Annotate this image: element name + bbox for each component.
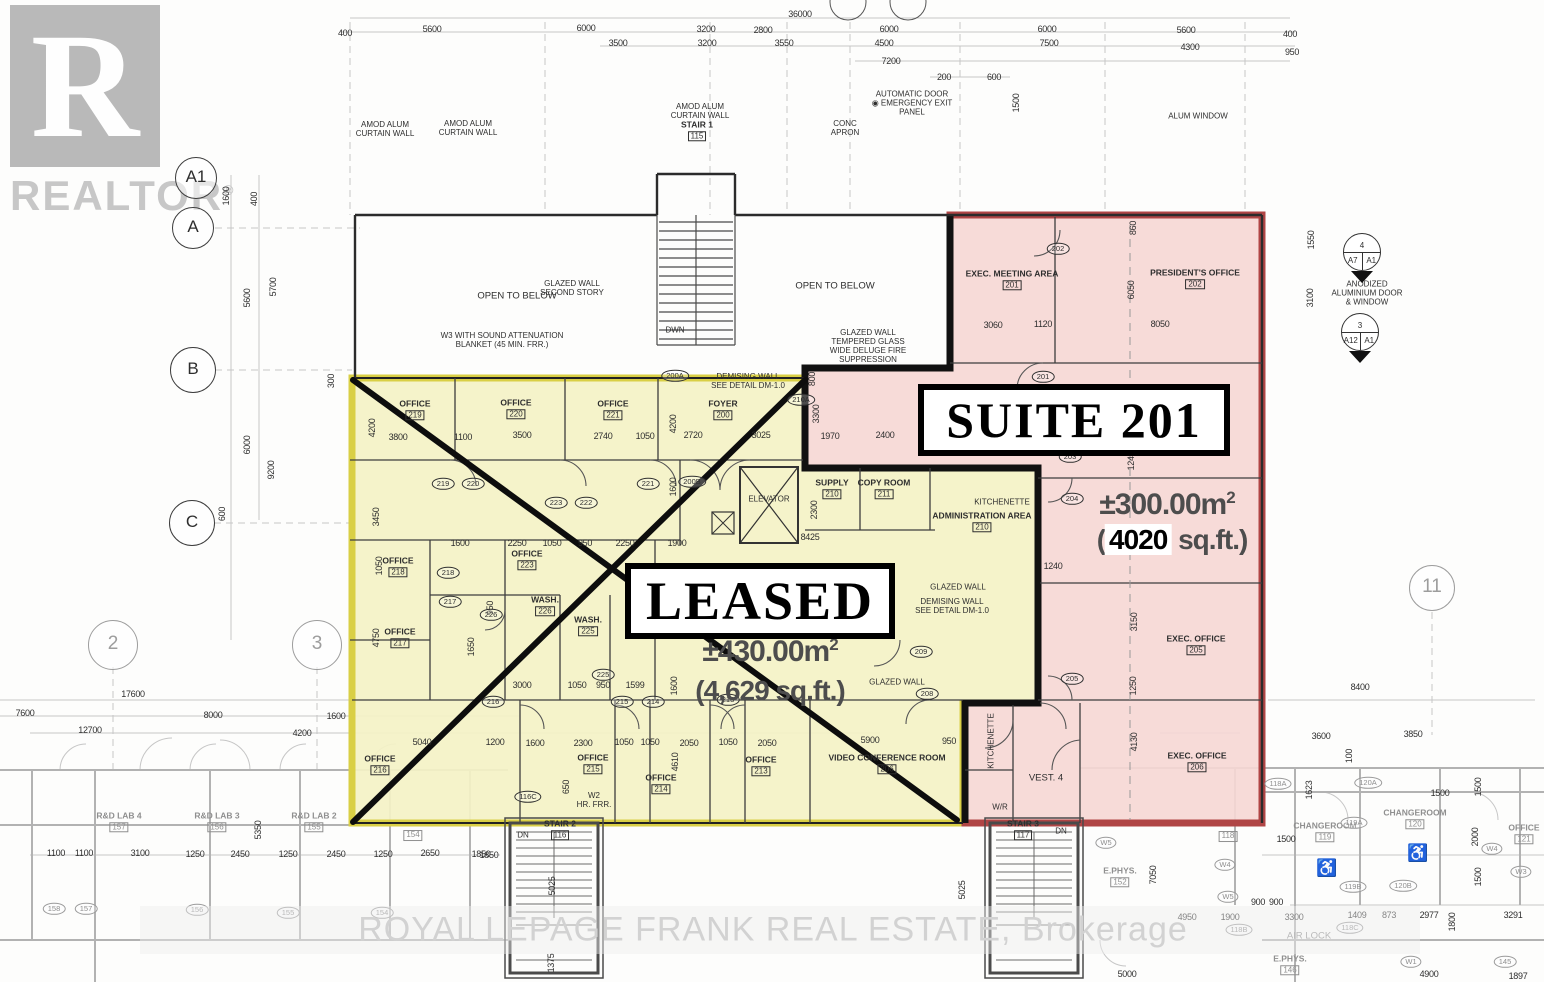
dimension-label: 650	[561, 780, 571, 794]
door-tag: 209	[910, 646, 933, 658]
door-tag: 202	[1047, 243, 1070, 255]
dimension-label: 1600	[221, 187, 231, 206]
detail-marker: 4A7A1	[1343, 233, 1381, 283]
dimension-label: 1900	[668, 538, 687, 548]
dimension-label: 12700	[78, 725, 102, 735]
dimension-label: 1050	[719, 737, 738, 747]
dimension-label: 2050	[758, 738, 777, 748]
door-tag: 201	[1032, 371, 1055, 383]
dimension-label: 3600	[1312, 731, 1331, 741]
dimension-label: 1050	[543, 538, 562, 548]
door-tag: W4	[1481, 843, 1502, 855]
dimension-label: 1120	[1034, 319, 1052, 329]
door-tag: W3	[1510, 866, 1531, 878]
dimension-label: 1897	[1509, 971, 1528, 981]
dimension-label: 400	[1283, 29, 1297, 39]
annotation-label: VEST. 4	[1029, 774, 1063, 785]
dimension-label: 1600	[668, 478, 678, 497]
door-tag: 219	[432, 478, 455, 490]
room-label: STAIR 1115	[681, 120, 713, 141]
dimension-label: 4750	[371, 629, 381, 648]
brokerage-watermark: ROYAL LEPAGE FRANK REAL ESTATE, Brokerag…	[358, 911, 1188, 950]
dimension-label: 5700	[268, 278, 278, 297]
dimension-label: 950	[596, 680, 610, 690]
dimension-label: 2000	[1470, 828, 1480, 847]
door-tag: 118A	[1265, 778, 1292, 790]
dimension-label: 3550	[775, 38, 794, 48]
dimension-label: 1600	[526, 738, 545, 748]
dimension-label: 2400	[876, 430, 895, 440]
dimension-label: 4200	[293, 728, 312, 738]
suite-area-sqft: (4020 sq.ft.)	[1097, 524, 1248, 556]
dimension-label: 3850	[1404, 729, 1423, 739]
annotation-label: GLAZED WALL	[930, 584, 986, 593]
grid-bubble: 2	[88, 620, 138, 670]
dimension-label: 3060	[984, 320, 1003, 330]
annotation-label: W/R	[992, 804, 1008, 813]
room-label: R&D LAB 4157	[96, 811, 141, 832]
dimension-label: 8050	[1151, 319, 1170, 329]
door-tag: W5	[1095, 837, 1116, 849]
door-tag: 116C	[514, 791, 541, 803]
room-label: WASH.225	[574, 615, 602, 636]
dimension-label: 4500	[875, 38, 894, 48]
annotation-label: DEMISING WALL SEE DETAIL DM-1.0	[915, 598, 989, 616]
leased-area-m2: ±430.00m2	[702, 635, 837, 669]
dimension-label: 1050	[615, 737, 634, 747]
dimension-label: 6050	[1126, 281, 1136, 300]
dimension-label: 1970	[821, 431, 840, 441]
door-tag: 119B	[1340, 881, 1367, 893]
dimension-label: 7600	[16, 708, 35, 718]
dimension-label: 3100	[131, 848, 150, 858]
dimension-label: 1600	[327, 711, 346, 721]
dimension-label: 2800	[754, 25, 773, 35]
grid-bubble: 11	[1409, 565, 1455, 611]
dimension-label: 2250	[508, 538, 527, 548]
dimension-label: 860	[1128, 221, 1138, 235]
door-tag: 205	[1061, 673, 1084, 685]
dimension-label: 1599	[626, 680, 645, 690]
dimension-label: 1250	[279, 849, 298, 859]
suite-area-m2: ±300.00m2	[1099, 488, 1234, 522]
dimension-label: 950	[1285, 47, 1299, 57]
dimension-label: 1500	[1473, 868, 1483, 887]
dimension-label: 4900	[1420, 969, 1439, 979]
annotation-label: ANODIZED ALUMINIUM DOOR & WINDOW	[1331, 281, 1402, 308]
dimension-label: 4130	[1129, 733, 1139, 752]
dimension-label: 5040	[413, 737, 432, 747]
door-tag: 226	[480, 609, 503, 621]
suite-sqft-number: 4020	[1105, 524, 1171, 555]
dimension-label: 3500	[609, 38, 628, 48]
dimension-label: 600	[987, 72, 1001, 82]
dimension-label: 5350	[253, 821, 263, 840]
dimension-label: 1650	[466, 638, 476, 657]
dimension-label: 1623	[1304, 781, 1314, 800]
dimension-label: 2250	[616, 538, 635, 548]
room-label: E.PHYS.152	[1103, 866, 1137, 887]
dimension-label: 1250	[1128, 677, 1138, 696]
dimension-label: 6000	[880, 24, 899, 34]
dimension-label: 1800	[1447, 913, 1457, 932]
door-tag: 120B	[1389, 880, 1417, 892]
door-tag: 221	[637, 478, 660, 490]
dimension-label: 2300	[574, 738, 593, 748]
dimension-label: 2450	[231, 849, 250, 859]
annotation-label: KITCHENETTE	[988, 713, 997, 769]
dimension-label: 3150	[1129, 613, 1139, 632]
annotation-label: AMOD ALUM CURTAIN WALL	[439, 120, 498, 138]
dimension-label: 5025	[547, 877, 557, 896]
dimension-label: 1050	[636, 431, 655, 441]
dimension-label: 3100	[1305, 289, 1315, 308]
room-label: OFFICE219	[399, 399, 430, 420]
door-tag: 204	[1061, 493, 1084, 505]
annotation-label: OPEN TO BELOW	[795, 282, 874, 293]
dimension-label: 950	[942, 736, 956, 746]
door-tag: 120A	[1354, 777, 1382, 789]
dimension-label: 5000	[1118, 969, 1137, 979]
room-label: OFFICE223	[511, 549, 542, 570]
room-label: WASH.226	[531, 595, 559, 616]
grid-bubble: B	[170, 347, 216, 393]
annotation-label: GLAZED WALL	[869, 679, 925, 688]
dimension-label: 17600	[121, 689, 145, 699]
dimension-label: 5600	[423, 24, 442, 34]
dimension-label: 2720	[684, 430, 703, 440]
dimension-label: 400	[338, 28, 352, 38]
door-tag: 200A	[661, 370, 689, 382]
dimension-label: 3450	[371, 508, 381, 527]
annotation-label: DN	[517, 832, 529, 841]
grid-bubble: C	[169, 500, 215, 546]
dimension-label: 5025	[957, 881, 967, 900]
dimension-label: 8400	[1351, 682, 1370, 692]
door-tag: 157	[75, 903, 98, 915]
annotation-label: GLAZED WALL TEMPERED GLASS WIDE DELUGE F…	[830, 329, 906, 365]
door-tag: 216	[482, 696, 505, 708]
dimension-label: 3300	[811, 405, 821, 424]
room-label: 154	[403, 829, 422, 841]
room-label: FOYER200	[708, 399, 737, 420]
dimension-label: 3000	[513, 680, 532, 690]
dimension-label: 1100	[47, 848, 65, 858]
detail-marker: 3A12A1	[1341, 313, 1379, 363]
room-label: OFFICE215	[577, 753, 608, 774]
dimension-label: 400	[249, 192, 259, 206]
suite-201-banner: SUITE 201	[918, 384, 1230, 456]
room-label: OFFICE121	[1508, 823, 1539, 844]
dimension-label: 36000	[788, 9, 812, 19]
dimension-label: 1200	[486, 737, 505, 747]
room-label: R&D LAB 2155	[291, 811, 336, 832]
dimension-label: 2650	[421, 848, 440, 858]
room-label: PRESIDENT'S OFFICE202	[1150, 268, 1240, 289]
dimension-label: 2740	[594, 431, 613, 441]
door-tag: 214	[642, 696, 665, 708]
dimension-label: 6000	[577, 23, 596, 33]
door-tag: 220	[462, 478, 485, 490]
dimension-label: 3025	[752, 430, 771, 440]
wheelchair-icon: ♿	[1407, 843, 1428, 862]
door-tag: 218	[437, 567, 460, 579]
room-label: E.PHYS.146	[1273, 954, 1307, 975]
dimension-label: 1050	[641, 737, 660, 747]
dimension-label: 2300	[809, 501, 819, 520]
annotation-label: KITCHENETTE	[974, 499, 1030, 508]
room-label: ADMINISTRATION AREA210	[932, 511, 1031, 532]
leased-area-sqft: (4,629 sq.ft.)	[695, 675, 844, 707]
door-tag: 158	[43, 903, 66, 915]
dimension-label: 5600	[242, 289, 252, 308]
annotation-label: DEMISING WALL SEE DETAIL DM-1.0	[711, 373, 785, 391]
dimension-label: 1600	[669, 677, 679, 696]
annotation-label: CONC APRON	[831, 120, 859, 138]
dimension-label: 1500	[1473, 778, 1483, 797]
dimension-label: 3800	[389, 432, 408, 442]
dimension-label: 8000	[204, 710, 223, 720]
door-tag: W5	[1217, 891, 1238, 903]
room-label: SUPPLY210	[815, 478, 848, 499]
room-label: OFFICE218	[382, 556, 413, 577]
annotation-label: ALUM WINDOW	[1168, 113, 1228, 122]
dimension-label: 950	[578, 538, 592, 548]
room-label: R&D LAB 3156	[194, 811, 239, 832]
room-label: OFFICE216	[364, 754, 395, 775]
dimension-label: 1250	[186, 849, 205, 859]
dimension-label: 100	[1344, 749, 1354, 763]
dimension-label: 1100	[454, 432, 472, 442]
dimension-label: 4300	[1181, 42, 1200, 52]
dimension-label: 1050	[568, 680, 587, 690]
door-tag: 210A	[787, 394, 815, 406]
room-label: EXEC. MEETING AREA201	[966, 269, 1059, 290]
dimension-label: 1850	[472, 849, 491, 859]
room-label: OFFICE221	[597, 399, 628, 420]
dimension-label: 4200	[668, 415, 678, 434]
dimension-label: 1500	[1431, 788, 1450, 798]
door-tag: 215	[611, 696, 634, 708]
dimension-label: 2050	[680, 738, 699, 748]
dimension-label: 2977	[1420, 910, 1439, 920]
dimension-label: 200	[937, 72, 951, 82]
door-tag: 217	[439, 596, 462, 608]
door-tag: 200B	[678, 476, 706, 488]
dimension-label: 3200	[697, 24, 716, 34]
dimension-label: 1500	[1011, 94, 1021, 113]
dimension-label: 5600	[1177, 25, 1196, 35]
annotation-label: W2 HR. FRR.	[577, 792, 612, 810]
dimension-label: 8425	[801, 532, 820, 542]
dimension-label: 4200	[367, 419, 377, 438]
door-tag: 222	[575, 497, 598, 509]
room-label: OFFICE214	[645, 773, 676, 794]
room-label: EXEC. OFFICE205	[1166, 634, 1225, 655]
room-label: STAIR 2116	[544, 819, 576, 840]
grid-bubble: 3	[292, 620, 342, 670]
dimension-label: 6000	[242, 436, 252, 455]
room-label: OFFICE217	[384, 627, 415, 648]
dimension-label: 3200	[698, 38, 717, 48]
grid-bubble: A1	[175, 157, 217, 199]
dimension-label: 7500	[1040, 38, 1059, 48]
door-tag: W4	[1214, 859, 1235, 871]
annotation-label: W3 WITH SOUND ATTENUATION BLANKET (45 MI…	[441, 332, 564, 350]
dimension-label: 300	[326, 374, 336, 388]
room-label: COPY ROOM211	[858, 478, 911, 499]
room-label: VIDEO CONFERENCE ROOM206	[828, 753, 945, 774]
room-label: 118	[1219, 830, 1238, 842]
dimension-label: 7050	[1148, 866, 1158, 885]
room-label: STAIR 3117	[1007, 819, 1039, 840]
dimension-label: 600	[217, 507, 227, 521]
wheelchair-icon: ♿	[1316, 858, 1337, 877]
room-label: EXEC. OFFICE206	[1167, 751, 1226, 772]
dimension-label: 3291	[1504, 910, 1523, 920]
door-tag: 208	[916, 688, 939, 700]
annotation-label: AMOD ALUM CURTAIN WALL	[671, 103, 730, 121]
door-tag: W1	[1400, 956, 1421, 968]
annotation-label: OPEN TO BELOW	[477, 292, 556, 303]
door-tag: 225	[592, 669, 615, 681]
door-tag: 119A	[1341, 817, 1368, 829]
floorplan-screenshot: R REALTOR® 36000400560060003200280060006…	[0, 0, 1544, 982]
annotation-label: DWN	[665, 327, 684, 336]
dimension-label: 6000	[1038, 24, 1057, 34]
door-tag: 145	[1494, 956, 1517, 968]
dimension-label: 1100	[75, 848, 93, 858]
annotation-label: AMOD ALUM CURTAIN WALL	[356, 121, 415, 139]
dimension-label: 800	[807, 372, 817, 386]
dimension-label: 9200	[266, 461, 276, 480]
plan-annotations-layer: 3600040056006000320028006000600056004009…	[0, 0, 1544, 982]
annotation-label: ELEVATOR	[748, 496, 789, 505]
room-label: OFFICE213	[745, 755, 776, 776]
door-tag: 223	[545, 497, 568, 509]
dimension-label: 1600	[451, 538, 470, 548]
room-label: CHANGEROOM120	[1383, 808, 1446, 829]
dimension-label: 3500	[513, 430, 532, 440]
dimension-label: 5900	[861, 735, 880, 745]
room-label: OFFICE220	[500, 398, 531, 419]
dimension-label: 1250	[374, 849, 393, 859]
leased-banner: LEASED	[625, 563, 895, 639]
annotation-label: AUTOMATIC DOOR ◉ EMERGENCY EXIT PANEL	[872, 91, 953, 118]
grid-bubble: A	[172, 207, 214, 249]
dimension-label: 1550	[1306, 231, 1316, 250]
dimension-label: 7200	[882, 56, 901, 66]
dimension-label: 1375	[546, 954, 556, 973]
dimension-label: 4610	[670, 753, 680, 772]
dimension-label: 2450	[327, 849, 346, 859]
annotation-label: DN	[1055, 828, 1067, 837]
dimension-label: 1240	[1044, 561, 1063, 571]
